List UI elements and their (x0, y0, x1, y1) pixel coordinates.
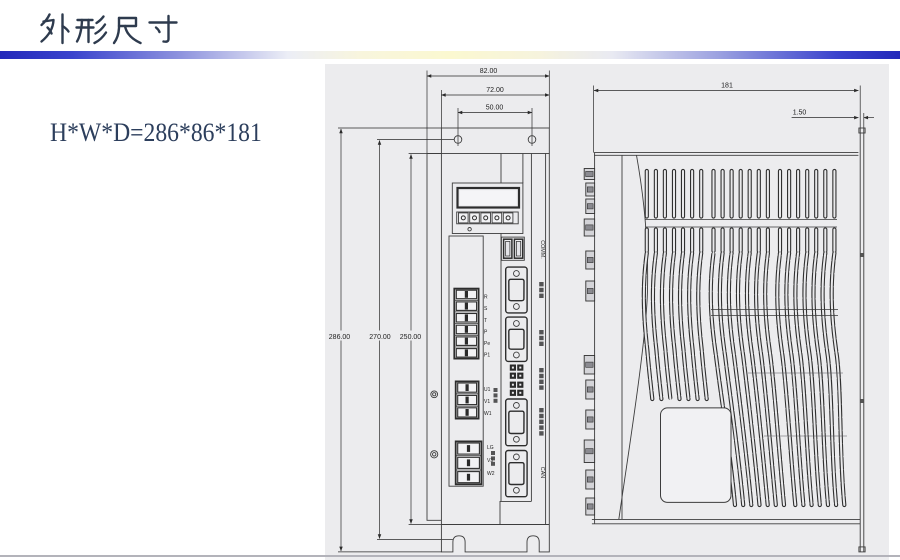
svg-text:W1: W1 (484, 411, 492, 417)
svg-text:Pe: Pe (484, 341, 490, 347)
svg-text:W2: W2 (487, 471, 495, 477)
svg-text:270.00: 270.00 (369, 334, 391, 341)
svg-text:R: R (484, 295, 488, 301)
svg-text:COMM.: COMM. (539, 240, 545, 259)
svg-text:181: 181 (721, 83, 733, 90)
svg-text:50.00: 50.00 (486, 105, 504, 112)
svg-text:T: T (484, 318, 487, 324)
svg-text:P1: P1 (484, 353, 490, 359)
svg-text:1.50: 1.50 (793, 110, 807, 117)
svg-text:82.00: 82.00 (480, 68, 498, 75)
svg-text:V1: V1 (484, 399, 490, 405)
svg-text:CAN: CAN (539, 467, 545, 478)
svg-text:286.00: 286.00 (329, 334, 351, 341)
svg-text:U1: U1 (484, 387, 491, 393)
svg-text:72.00: 72.00 (486, 87, 504, 94)
svg-text:250.00: 250.00 (400, 334, 422, 341)
svg-text:LG: LG (487, 445, 494, 451)
